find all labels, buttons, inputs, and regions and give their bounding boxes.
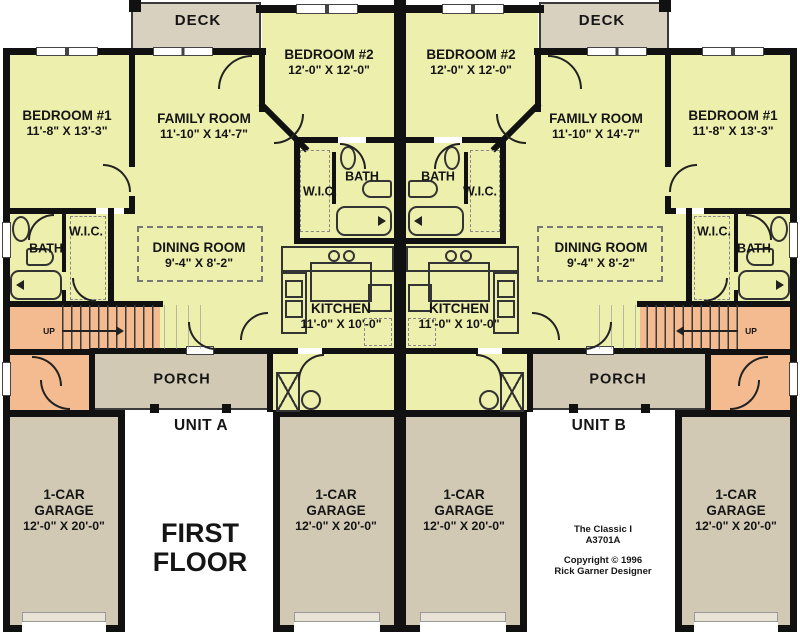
label-bedroom1-unit-a: BEDROOM #111'-8" X 13'-3" [22,108,111,138]
deck-post [129,0,141,12]
wall-garage-outer-right [118,410,125,632]
wall-foyer-top [707,349,797,355]
copyright-block: Copyright © 1996Rick Garner Designer [554,555,651,577]
sink-outer-bath [770,216,788,242]
garage-door-opening-inner [294,622,380,637]
label-bath-outer-unit-a: BATH [29,242,63,257]
wall-garage-outer-left [3,410,10,632]
tub-arrow-outer [776,280,784,290]
stair-treads [62,305,158,349]
wall-garage-inner-left [520,410,527,632]
window-bedroom2 [442,4,504,14]
label-up-unit-b: UP [745,326,757,336]
oven-upper [497,280,515,298]
garage-door-step-outer [694,612,778,622]
kitchen-sink-bowl-1 [328,250,340,262]
label-bath-inner-unit-a: BATH [345,170,379,185]
wall-innerbath-bottom [294,238,394,244]
porch-post-right [222,404,231,413]
garage-door-opening-outer [694,622,778,637]
plan-title-block: The Classic IA3701A [574,524,632,546]
garage-door-opening-outer [22,622,106,637]
up-arrow-head [116,326,124,336]
wall-garage-outer-right [675,410,682,632]
window-bedroom1 [702,47,764,56]
label-wic-inner-unit-b: W.I.C. [463,185,497,200]
garage-door-step-inner [420,612,506,622]
wall-bedroom1-right [129,55,135,167]
label-dining-unit-a: DINING ROOM9'-4" X 8'-2" [153,240,246,270]
up-arrow-line [62,330,116,332]
kitchen-sink-bowl-1 [460,250,472,262]
garage-door-step-inner [294,612,380,622]
label-bedroom2-unit-b: BEDROOM #212'-0" X 12'-0" [426,47,515,77]
kitchen-sink-bowl-2 [445,250,457,262]
window-family-room [153,47,213,56]
window-bath-outer [789,222,798,258]
label-dining-unit-b: DINING ROOM9'-4" X 8'-2" [555,240,648,270]
door-gap-utility [298,348,322,354]
page-title: FIRST FLOOR [130,519,270,577]
up-arrow-line [684,330,738,332]
bedroom2-area [406,10,538,52]
porch-post-left [150,404,159,413]
label-garage-outer-unit-b: 1-CARGARAGE12'-0" X 20'-0" [695,487,777,533]
oven-upper [285,280,303,298]
label-kitchen-unit-a: KITCHEN11'-0" X 10'-0" [300,301,381,331]
wall-innerbath-left [500,137,506,243]
dryer [301,390,321,410]
porch-post-left [641,404,650,413]
label-bedroom2-unit-a: BEDROOM #212'-0" X 12'-0" [284,47,373,77]
wall-utility-top [404,348,533,354]
label-garage-inner-unit-a: 1-CARGARAGE12'-0" X 20'-0" [295,487,377,533]
label-porch-unit-b: PORCH [589,371,646,388]
kitchen-island [310,262,372,302]
kitchen-sink-bowl-2 [343,250,355,262]
wall-wic-right [108,208,114,307]
label-deck-unit-a: DECK [175,12,222,30]
wall-foyer-top [3,349,93,355]
wall-utility-left [527,352,533,412]
door-gap-utility [478,348,502,354]
label-porch-unit-a: PORCH [153,371,210,388]
label-bath-inner-unit-b: BATH [421,170,455,185]
washer [500,372,524,412]
window-bath-outer [2,222,11,258]
dryer [479,390,499,410]
tub-arrow-inner [378,216,386,226]
wall-garage-outer-top [3,410,125,417]
window-bedroom2 [296,4,358,14]
kitchen-island [428,262,490,302]
label-bath-outer-unit-b: BATH [737,242,771,257]
wall-garage-outer-left [790,410,797,632]
wall-utility-left [267,352,273,412]
label-kitchen-unit-b: KITCHEN11'-0" X 10'-0" [418,301,499,331]
stair-treads [642,305,738,349]
label-unit-b: UNIT B [572,417,627,435]
washer [276,372,300,412]
window-foyer [789,362,798,396]
tub-arrow-outer [16,280,24,290]
wall-bedroom1-right [665,55,671,167]
label-bedroom1-unit-b: BEDROOM #111'-8" X 13'-3" [688,108,777,138]
tub-arrow-inner [414,216,422,226]
window-family-room [587,47,647,56]
label-wic-outer-unit-a: W.I.C. [69,225,103,240]
label-deck-unit-b: DECK [579,12,626,30]
bedroom2-area [262,10,394,52]
oven-lower [497,300,515,318]
label-garage-outer-unit-a: 1-CARGARAGE12'-0" X 20'-0" [23,487,105,533]
wall-utility-top [267,348,396,354]
label-garage-inner-unit-b: 1-CARGARAGE12'-0" X 20'-0" [423,487,505,533]
party-wall [400,0,406,632]
label-wic-outer-unit-b: W.I.C. [697,225,731,240]
window-bedroom1 [36,47,98,56]
wall-foyer-right [89,352,95,412]
garage-door-opening-inner [420,622,506,637]
garage-door-step-outer [22,612,106,622]
label-family-room-unit-b: FAMILY ROOM11'-10" X 14'-7" [549,111,643,141]
deck-post [659,0,671,12]
floor-plan: DECK DECK BEDROOM #212'-0" X 12'-0" BEDR… [0,0,800,637]
label-family-room-unit-a: FAMILY ROOM11'-10" X 14'-7" [157,111,251,141]
wall-innerbath-bottom [406,238,506,244]
porch-post-right [569,404,578,413]
wall-garage-outer-top [675,410,797,417]
label-wic-inner-unit-a: W.I.C. [303,185,337,200]
wall-foyer-right [705,352,711,412]
up-arrow-head [676,326,684,336]
window-foyer [2,362,11,396]
wall-garage-inner-left [273,410,280,632]
label-unit-a: UNIT A [174,417,228,435]
label-up-unit-a: UP [43,326,55,336]
wall-wic-right [686,208,692,307]
